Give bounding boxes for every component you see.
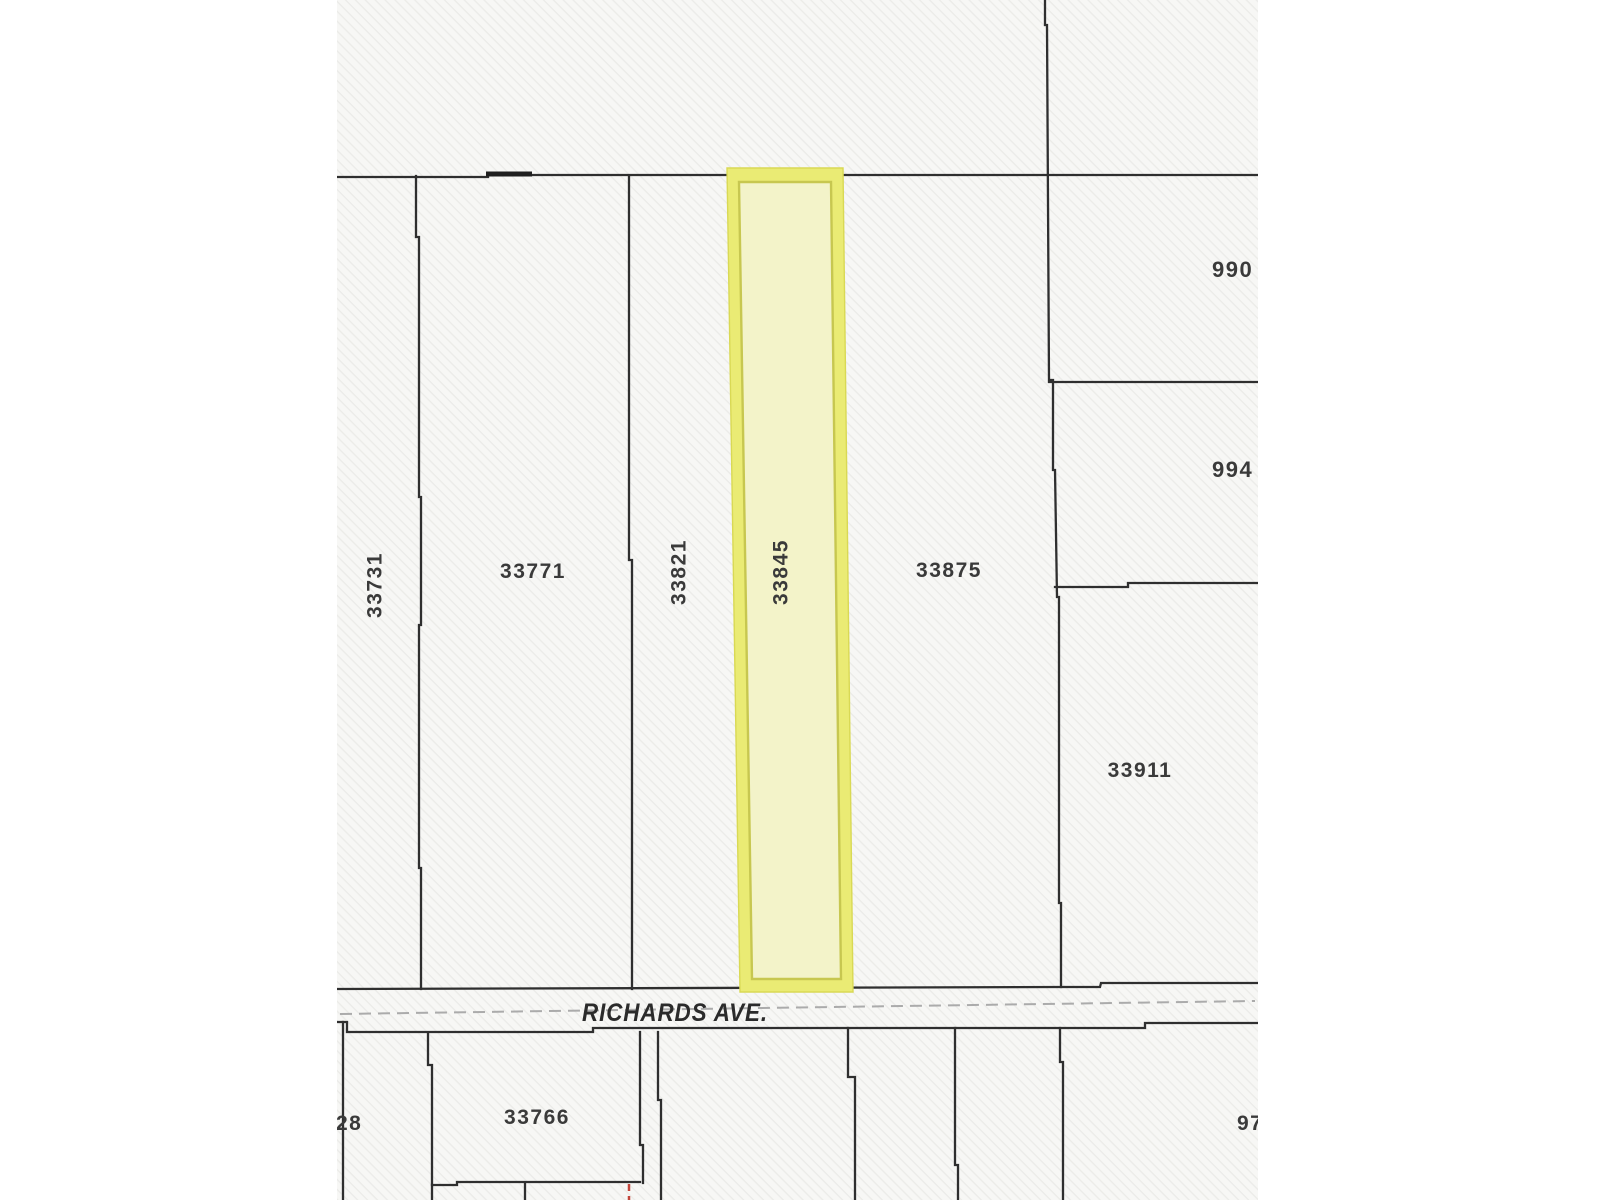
parcel-label-33731: 33731: [364, 552, 387, 618]
street-label: RICHARDS AVE.: [582, 999, 768, 1027]
parcel-label-33875: 33875: [916, 559, 982, 582]
parcel-label-33911: 33911: [1108, 759, 1173, 782]
parcel-label-33821: 33821: [668, 539, 691, 605]
parcel-label-28: 28: [336, 1112, 362, 1135]
parcel-label-994: 994: [1212, 457, 1253, 482]
map-canvas[interactable]: 33731 33771 33821 33845 33875 990 994 33…: [0, 0, 1600, 1200]
parcel-label-33771: 33771: [500, 560, 566, 583]
parcel-label-33845: 33845: [770, 539, 793, 605]
parcel-label-33766: 33766: [504, 1106, 570, 1129]
parcel-label-990: 990: [1212, 257, 1253, 282]
parcel-map-page: 33731 33771 33821 33845 33875 990 994 33…: [0, 0, 1600, 1200]
